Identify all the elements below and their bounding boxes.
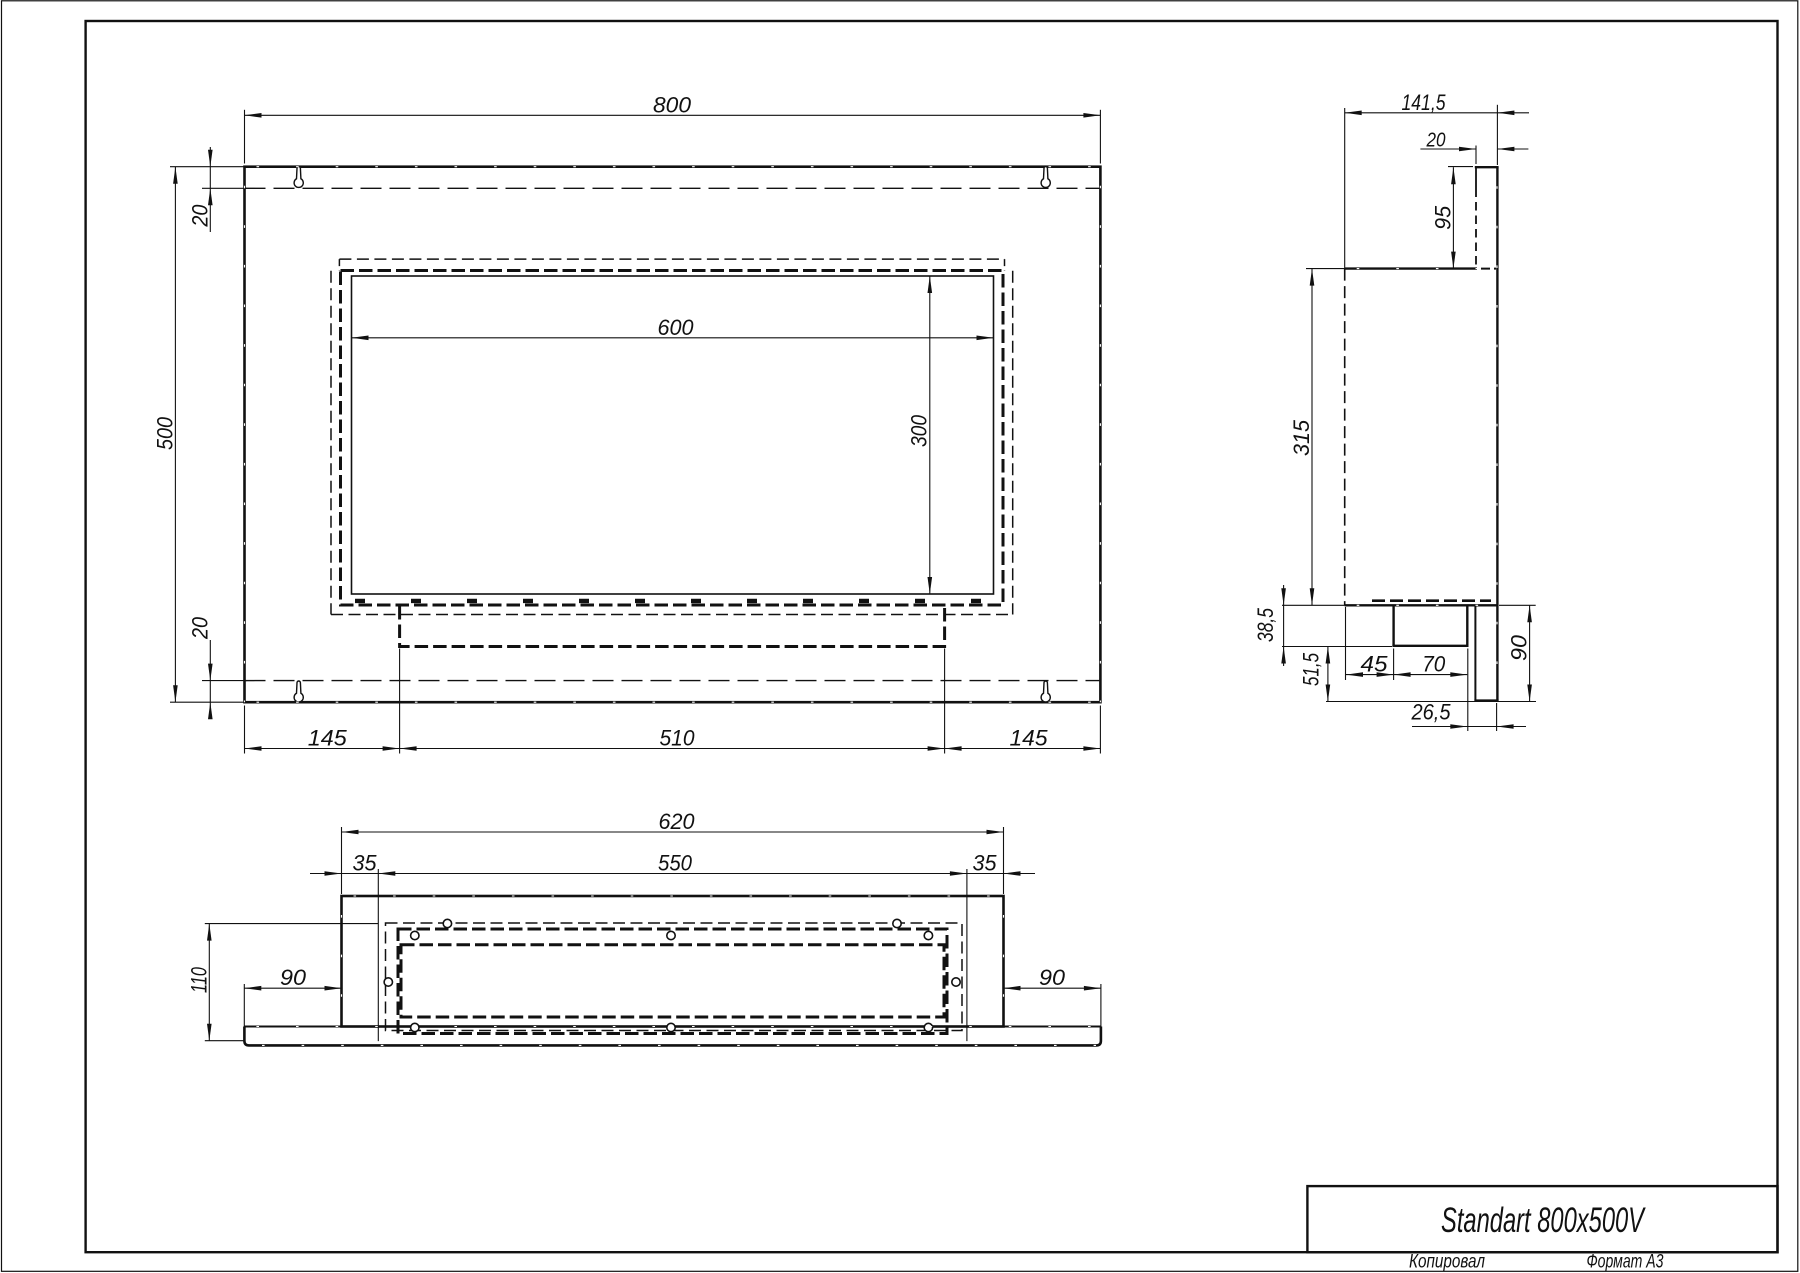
- svg-text:26,5: 26,5: [1411, 700, 1451, 725]
- svg-text:95: 95: [1431, 205, 1456, 229]
- svg-text:Standart 800x500V: Standart 800x500V: [1441, 1201, 1646, 1240]
- svg-text:51,5: 51,5: [1299, 653, 1324, 686]
- svg-text:20: 20: [187, 617, 212, 640]
- svg-text:90: 90: [280, 965, 307, 990]
- svg-text:35: 35: [353, 851, 377, 876]
- svg-text:800: 800: [653, 93, 691, 118]
- svg-text:145: 145: [1010, 726, 1048, 751]
- svg-text:90: 90: [1507, 634, 1532, 661]
- svg-text:620: 620: [659, 809, 695, 834]
- svg-text:500: 500: [153, 417, 178, 450]
- svg-text:600: 600: [658, 315, 694, 340]
- svg-text:Формат А3: Формат А3: [1587, 1251, 1664, 1273]
- svg-text:110: 110: [186, 967, 211, 993]
- svg-text:45: 45: [1361, 652, 1389, 677]
- svg-text:70: 70: [1422, 652, 1445, 677]
- svg-text:Копировал: Копировал: [1409, 1251, 1485, 1273]
- svg-text:510: 510: [660, 726, 695, 751]
- svg-text:550: 550: [658, 851, 692, 876]
- svg-text:145: 145: [308, 726, 347, 751]
- svg-text:300: 300: [907, 415, 932, 447]
- svg-text:315: 315: [1289, 420, 1314, 456]
- svg-text:90: 90: [1039, 965, 1066, 990]
- svg-text:38,5: 38,5: [1253, 608, 1278, 642]
- svg-text:20: 20: [1426, 130, 1446, 152]
- svg-text:20: 20: [187, 204, 212, 227]
- svg-text:141,5: 141,5: [1402, 90, 1446, 115]
- svg-text:35: 35: [973, 851, 997, 876]
